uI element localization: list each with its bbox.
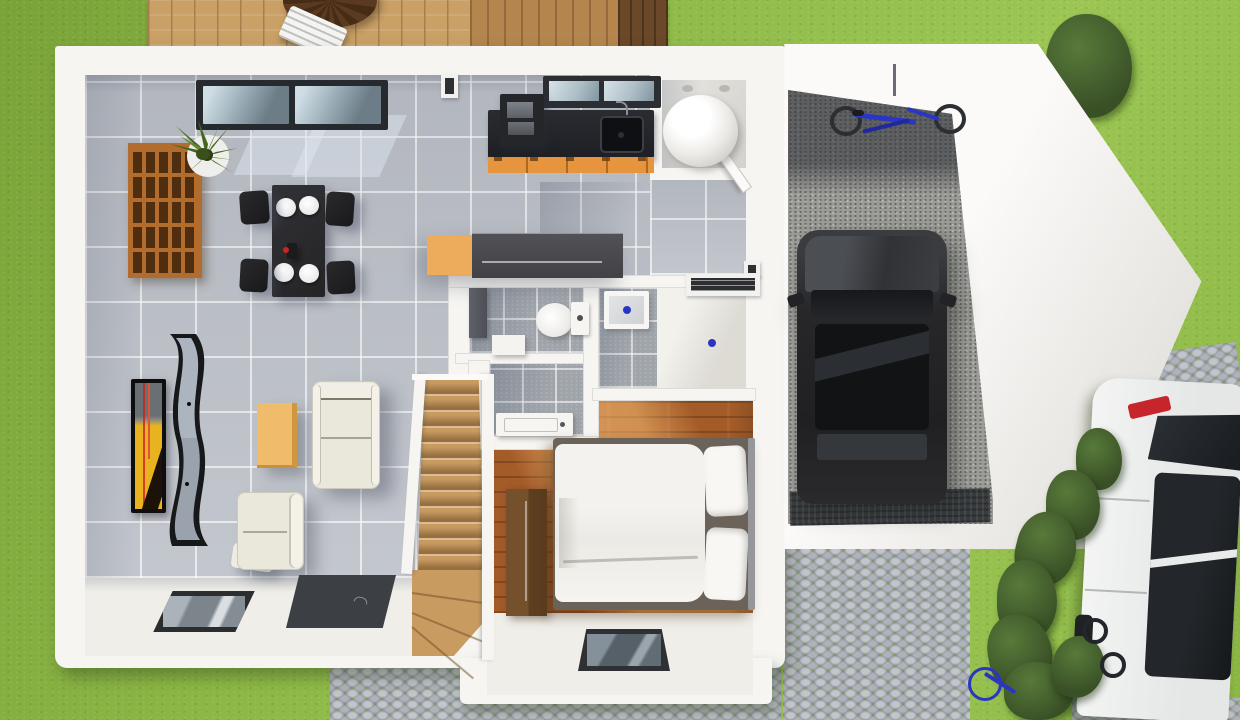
headboard [748, 438, 755, 610]
wardrobe-seam [525, 501, 527, 601]
stair-landing-edge [412, 374, 488, 380]
dining-chair [239, 258, 269, 292]
tv-screen [135, 383, 162, 509]
sofa-cushion-seam [321, 437, 371, 439]
sofa-backrest [314, 383, 378, 400]
entry-floor-marker [708, 339, 716, 347]
radiator-fins [691, 278, 755, 291]
bicycle-wheel [1100, 652, 1126, 678]
wall-vent [441, 74, 458, 98]
car-windshield [811, 290, 933, 322]
plate [274, 263, 294, 282]
oven-column [500, 94, 544, 146]
wave-media-console [162, 334, 216, 546]
rug [286, 575, 396, 628]
tv-red-stripe [143, 383, 145, 509]
oven-front [508, 122, 534, 135]
shower-drain [623, 306, 631, 314]
kitchen-faucet [616, 101, 628, 115]
roof-reflection [815, 324, 929, 385]
blue-bicycle-lawn [952, 655, 1022, 720]
staircase [408, 374, 494, 660]
microwave-front [507, 102, 533, 118]
coffee-table [257, 403, 297, 468]
basin-faucet [560, 422, 565, 427]
ceiling-spotlight [719, 85, 730, 92]
pillow [703, 527, 749, 601]
plate [276, 198, 296, 217]
armchair-backrest [289, 494, 302, 568]
island-sideboard [427, 235, 472, 275]
kitchen-window [543, 76, 661, 108]
bicycle-saddle [852, 110, 864, 116]
blue-bicycle [830, 92, 970, 146]
plate [299, 264, 319, 283]
flush-button [577, 315, 583, 321]
glass-pane [295, 86, 381, 124]
bicycle-at-hedge [1082, 618, 1130, 680]
sofa [312, 381, 380, 489]
glass [587, 634, 661, 666]
dining-chair [326, 260, 356, 294]
armchair [237, 492, 304, 570]
stair-flight [418, 378, 484, 570]
car-glass-roof [815, 324, 929, 430]
tv-red-stripe [148, 383, 150, 459]
kitchen-cabinet-fronts [488, 157, 654, 173]
dining-chair [325, 191, 355, 227]
bicycle-wheel [1082, 618, 1108, 644]
radiator [686, 274, 760, 296]
cobblestone-driveway [783, 545, 970, 720]
waste-bin [492, 335, 525, 355]
kitchen-island [427, 233, 623, 277]
glass-roof [1144, 472, 1240, 680]
table-centerpiece [287, 243, 297, 259]
glass [163, 596, 245, 627]
glass-pane [604, 81, 654, 101]
bedroom-glass-panel [578, 629, 670, 671]
black-car [797, 230, 947, 504]
double-bed [553, 438, 755, 610]
hall-floor [650, 180, 746, 275]
pillow [703, 445, 749, 517]
plate [299, 196, 319, 215]
vent-grille [445, 78, 454, 94]
floor-plan-render [0, 0, 1240, 720]
stair-winders [412, 570, 488, 656]
dining-chair [239, 190, 270, 225]
island-top [472, 233, 623, 278]
vent-grille [748, 265, 756, 273]
stair-stringer-right [482, 374, 494, 660]
sink-drain [618, 132, 624, 138]
terrace-walnut-end [618, 0, 668, 46]
water-heater [663, 95, 738, 167]
ceiling-spotlight [682, 85, 693, 92]
toilet-cistern [571, 302, 589, 335]
rug-logo [354, 596, 369, 605]
island-seam [482, 261, 602, 263]
wall-bedroom-top [592, 388, 756, 401]
wall-tv [131, 379, 166, 513]
duvet-shadow [559, 498, 579, 568]
roof-pillar [1144, 545, 1240, 569]
armchair-seam [243, 531, 287, 533]
sofa-armrest [313, 385, 321, 485]
glass-pane [549, 81, 599, 101]
basin [504, 418, 558, 432]
wardrobe [506, 489, 547, 616]
bathroom-cupboard [469, 288, 487, 338]
plant-center [196, 148, 210, 160]
entry-hall-floor [657, 287, 746, 388]
car-rear-window [817, 434, 927, 460]
sofa-armrest [371, 385, 379, 485]
kitchen-sink [600, 116, 644, 153]
red-flower [283, 247, 289, 253]
shower-tray [604, 291, 649, 329]
washbasin-counter [496, 413, 573, 436]
car-hood [805, 236, 939, 292]
